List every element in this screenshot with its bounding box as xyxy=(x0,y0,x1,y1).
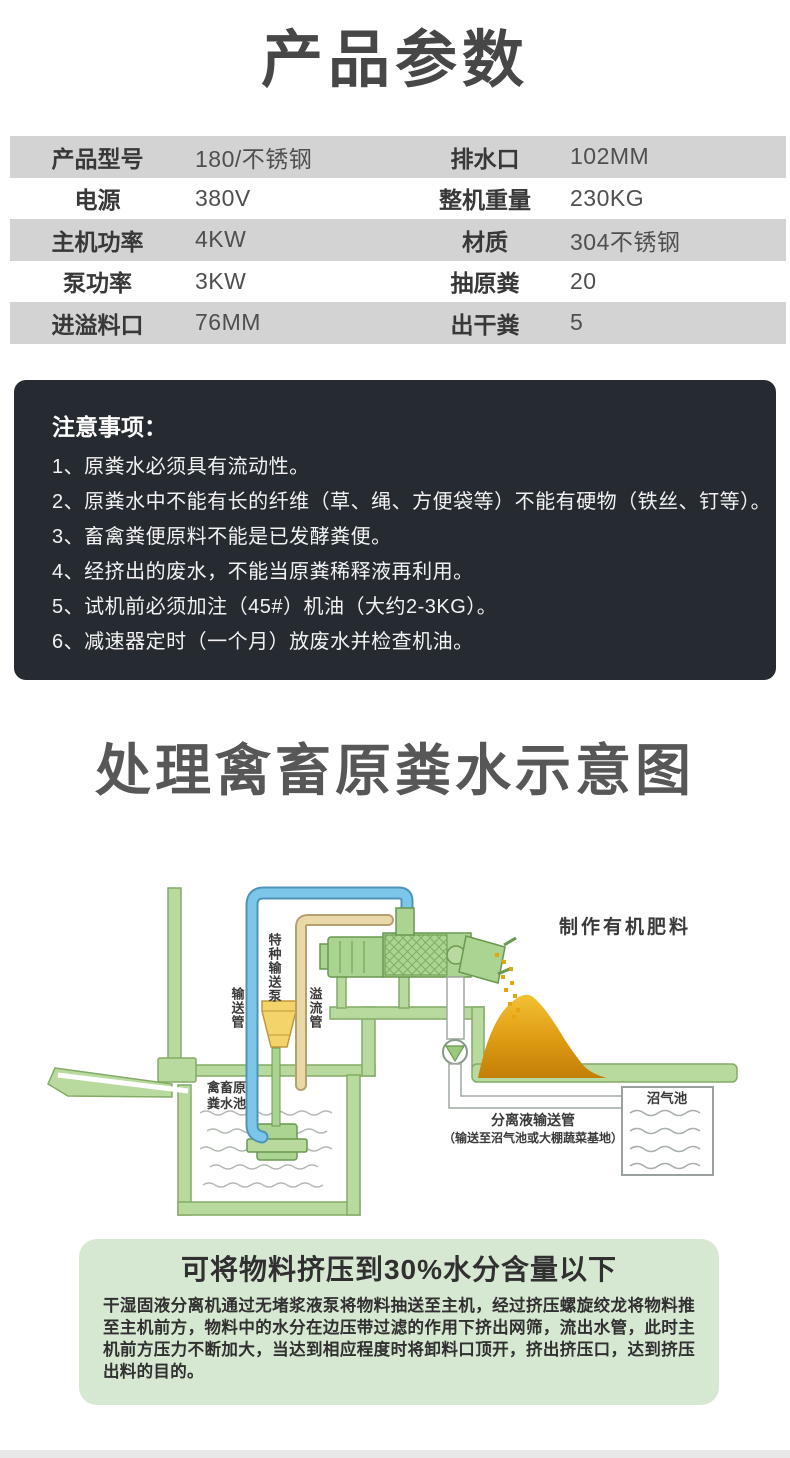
label-separated-pipe: 分离液输送管 xyxy=(491,1112,575,1128)
post-base xyxy=(158,1058,196,1082)
notes-item: 6、减速器定时（一个月）放废水并检查机油。 xyxy=(52,625,746,660)
spec-label: 产品型号 xyxy=(10,140,185,174)
spec-value: 76MM xyxy=(185,309,410,336)
inlet-column xyxy=(396,908,414,935)
spec-label: 泵功率 xyxy=(10,264,185,298)
spec-value: 102MM xyxy=(560,143,786,170)
support-post xyxy=(168,888,181,1068)
spec-value: 380V xyxy=(185,185,410,212)
label-biogas-pool: 沼气池 xyxy=(647,1090,688,1106)
table-row: 电源 380V 整机重量 230KG xyxy=(10,178,786,220)
tank-left-wall xyxy=(178,1085,191,1215)
summary-panel: 可将物料挤压到30%水分含量以下 干湿固液分离机通过无堵浆液泵将物料抽送至主机，… xyxy=(79,1239,719,1405)
notes-item: 2、原粪水中不能有长的纤维（草、绳、方便袋等）不能有硬物（铁丝、钉等）。 xyxy=(52,485,746,520)
spec-label: 电源 xyxy=(10,181,185,215)
label-separated-pipe-note: （输送至沼气池或大棚蔬菜基地） xyxy=(443,1130,623,1145)
spec-table: 产品型号 180/不锈钢 排水口 102MM 电源 380V 整机重量 230K… xyxy=(10,136,786,344)
spec-label: 材质 xyxy=(410,223,560,257)
platform-wall xyxy=(472,1007,484,1067)
tank-right-wall xyxy=(347,1075,360,1215)
notes-item: 4、经挤出的废水，不能当原粪稀释液再利用。 xyxy=(52,555,746,590)
spec-value: 180/不锈钢 xyxy=(185,140,410,174)
label-overflow-pipe: 溢流管 xyxy=(308,986,323,1029)
spec-label: 排水口 xyxy=(410,140,560,174)
spec-value: 3KW xyxy=(185,268,410,295)
table-row: 进溢料口 76MM 出干粪 5 xyxy=(10,302,786,344)
tank-bottom xyxy=(178,1202,360,1215)
machine-leg xyxy=(337,975,346,1008)
summary-title: 可将物料挤压到30%水分含量以下 xyxy=(103,1254,695,1286)
diagram-heading: 处理禽畜原粪水示意图 xyxy=(0,734,790,808)
summary-body: 干湿固液分离机通过无堵浆液泵将物料抽送至主机，经过挤压螺旋绞龙将物料推至主机前方… xyxy=(103,1295,695,1383)
table-row: 主机功率 4KW 材质 304不锈钢 xyxy=(10,219,786,261)
label-convey-pipe: 输送管 xyxy=(230,986,246,1029)
screen-section xyxy=(385,935,447,975)
table-row: 泵功率 3KW 抽原粪 20 xyxy=(10,261,786,303)
bottom-divider xyxy=(0,1450,790,1458)
label-special-pump: 特种输送泵 xyxy=(267,932,283,1003)
label-fertilizer: 制作有机肥料 xyxy=(559,915,691,938)
spec-label: 主机功率 xyxy=(10,223,185,257)
product-detail-page: 产品参数 产品型号 180/不锈钢 排水口 102MM 电源 380V 整机重量… xyxy=(0,0,790,1458)
special-conveying-pump xyxy=(262,1001,296,1047)
motor xyxy=(328,937,386,977)
machine-leg xyxy=(399,975,409,1008)
notes-item: 1、原粪水必须具有流动性。 xyxy=(52,450,746,485)
spec-value: 5 xyxy=(560,309,786,336)
notes-title: 注意事项： xyxy=(52,410,746,444)
page-title: 产品参数 xyxy=(0,18,790,104)
spec-label: 出干粪 xyxy=(410,306,560,340)
label-manure-pool-line1: 禽畜原 xyxy=(206,1080,246,1095)
spec-value: 20 xyxy=(560,268,786,295)
spec-value: 4KW xyxy=(185,226,410,253)
notes-item: 5、试机前必须加注（45#）机油（大约2-3KG）。 xyxy=(52,590,746,625)
table-row: 产品型号 180/不锈钢 排水口 102MM xyxy=(10,136,786,178)
label-manure-pool-line2: 粪水池 xyxy=(207,1096,246,1111)
notes-panel: 注意事项： 1、原粪水必须具有流动性。 2、原粪水中不能有长的纤维（草、绳、方便… xyxy=(14,380,776,680)
spec-value: 230KG xyxy=(560,185,786,212)
spec-label: 进溢料口 xyxy=(10,306,185,340)
spec-label: 整机重量 xyxy=(410,181,560,215)
notes-item: 3、畜禽粪便原料不能是已发酵粪便。 xyxy=(52,520,746,555)
process-diagram: 制作有机肥料 输送管 特种输送泵 溢流管 禽畜原 粪水池 分离液输送管 （输送至… xyxy=(25,875,765,1220)
spec-value: 304不锈钢 xyxy=(560,223,786,257)
spec-label: 抽原粪 xyxy=(410,264,560,298)
